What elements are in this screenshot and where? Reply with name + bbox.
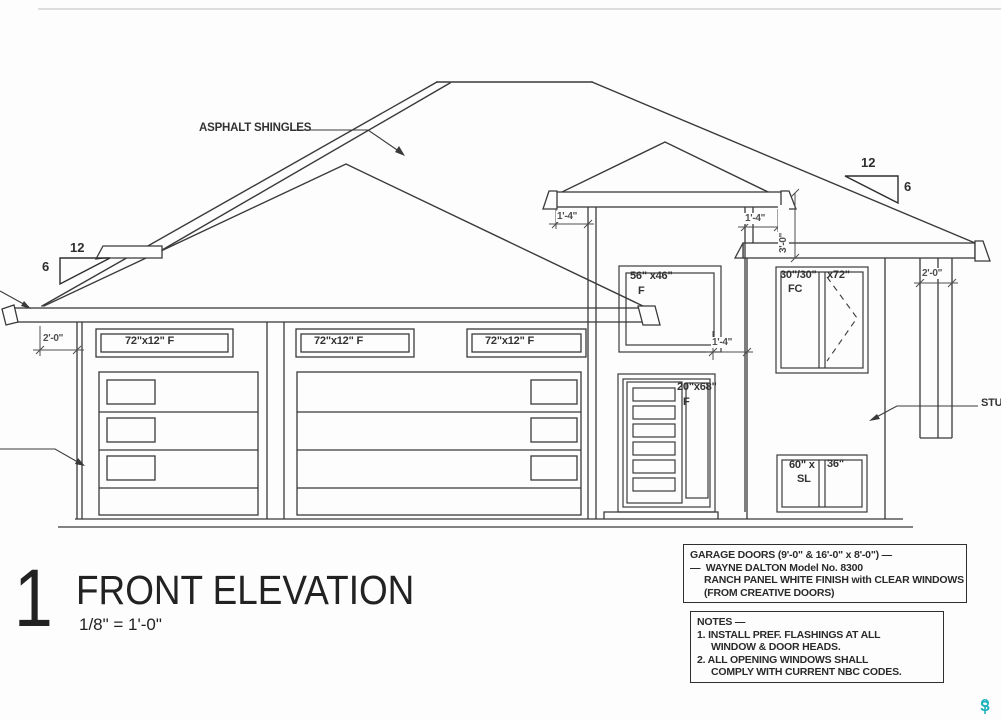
dim-right-overhang: 2'-0" — [921, 268, 943, 279]
slider-size-b: 36" — [827, 459, 844, 471]
garage-note-line: RANCH PANEL WHITE FINISH with CLEAR WIND… — [690, 574, 960, 587]
garage-note-line: (FROM CREATIVE DOORS) — [690, 587, 960, 600]
slope-right-rise: 6 — [904, 179, 911, 194]
slider-type: SL — [797, 474, 811, 486]
watermark: S — [980, 698, 990, 715]
garage-note-line: — WAYNE DALTON Model No. 8300 — [690, 562, 960, 575]
general-note-line: COMPLY WITH CURRENT NBC CODES. — [697, 666, 937, 679]
drawing-scale: 1/8" = 1'-0" — [79, 615, 162, 635]
entry-door — [618, 374, 715, 512]
tower-eave-band — [543, 191, 796, 209]
sidelite-type: F — [683, 397, 690, 409]
general-note-line: WINDOW & DOOR HEADS. — [697, 641, 937, 654]
general-note-line: 1. INSTALL PREF. FLASHINGS AT ALL — [697, 629, 937, 642]
dim-wall-jog: 1'-4" — [711, 337, 733, 348]
stucco-label: STU — [981, 398, 1001, 410]
leader-lines — [0, 130, 978, 465]
upper-left-fascia — [96, 246, 162, 259]
dim-fascia-drop: 3'-0" — [778, 205, 789, 253]
transom3-label: 72"x12" F — [485, 336, 534, 348]
slope-left-run: 12 — [70, 240, 84, 255]
drawing-title: FRONT ELEVATION — [76, 567, 414, 614]
garage-doors-note: GARAGE DOORS (9'-0" & 16'-0" x 8'-0") — … — [683, 544, 967, 603]
dim-left-overhang: 2'-0" — [42, 333, 64, 344]
sidelite-size: 20"x68" — [677, 382, 717, 394]
dim-tower-left: 1'-4" — [556, 211, 578, 222]
transom2-label: 72"x12" F — [314, 336, 363, 348]
casement-type: FC — [788, 284, 802, 296]
garage-door-right — [297, 372, 581, 515]
asphalt-shingles-label: ASPHALT SHINGLES — [199, 122, 311, 134]
garage-eave-band — [2, 305, 660, 325]
watermark-pin-icon — [980, 698, 990, 716]
garage-door-left — [99, 372, 258, 515]
transom1-label: 72"x12" F — [125, 336, 174, 348]
casement-size: 30"/30" — [780, 270, 817, 282]
sheet-number: 1 — [14, 558, 53, 640]
upper-window-size: 56" x46" — [630, 271, 672, 283]
general-note-line: 2. ALL OPENING WINDOWS SHALL — [697, 654, 937, 667]
upper-window-type: F — [638, 286, 645, 298]
slope-left-rise: 6 — [42, 259, 49, 274]
casement-height: x72" — [827, 270, 850, 282]
elevation-sheet: ASPHALT SHINGLES STU 12 6 12 6 72"x12" F… — [0, 0, 1001, 720]
general-note-line: NOTES — — [697, 616, 937, 629]
slider-size-a: 60" x — [789, 460, 815, 472]
dim-tower-right: 1'-4" — [744, 213, 766, 224]
garage-note-line: GARAGE DOORS (9'-0" & 16'-0" x 8'-0") — — [690, 549, 960, 562]
general-notes-box: NOTES — 1. INSTALL PREF. FLASHINGS AT AL… — [690, 611, 944, 683]
slope-right-run: 12 — [861, 155, 875, 170]
